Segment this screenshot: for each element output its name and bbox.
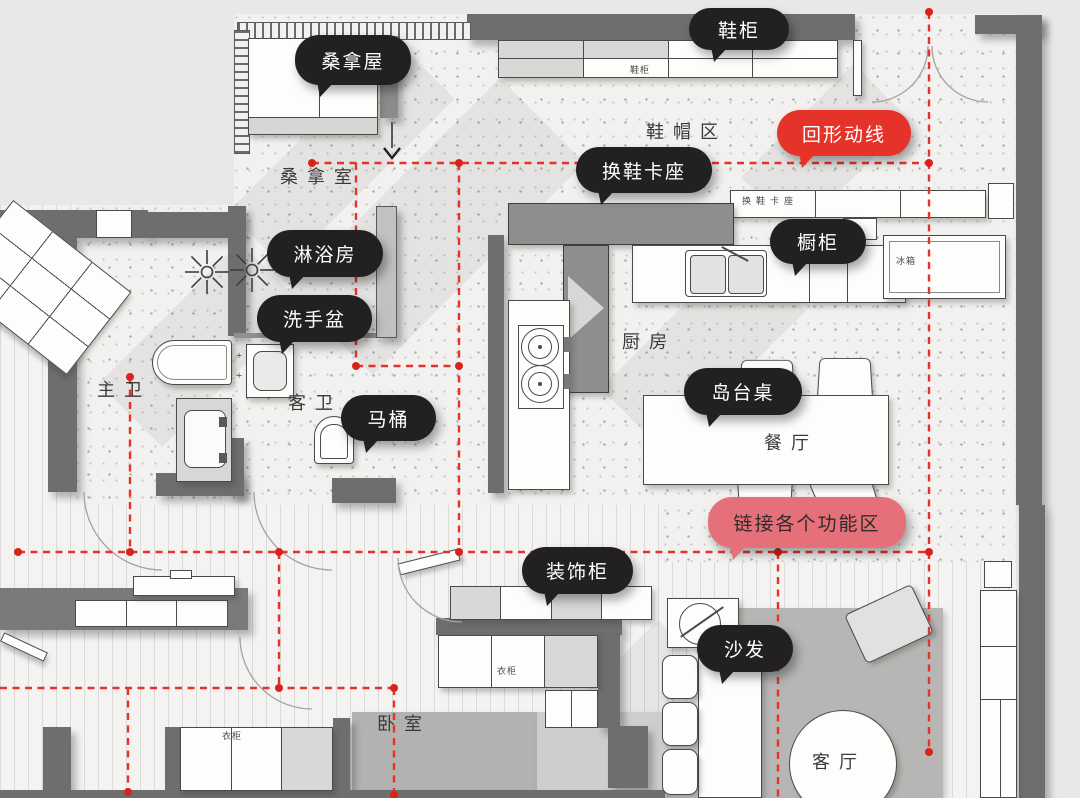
room-label-dining: 餐厅 — [764, 429, 818, 455]
plus-mark: + — [236, 370, 243, 382]
floor-plan: + + — [0, 0, 1080, 798]
wall-pillar — [96, 210, 132, 238]
plan-label-wardrobe-bl: 衣柜 — [222, 729, 242, 742]
bathtub — [152, 340, 232, 385]
wall-block-sofa-side — [608, 726, 648, 788]
callout-cupboard: 橱柜 — [770, 219, 866, 264]
callout-toilet: 马桶 — [341, 395, 436, 441]
wall-right-lower — [1019, 505, 1045, 798]
plan-label-shoe-cabinet: 鞋柜 — [630, 63, 650, 76]
callout-decorative-cabinet: 装饰柜 — [522, 547, 633, 594]
callout-shoe-cabinet: 鞋柜 — [689, 8, 789, 50]
callout-sofa: 沙发 — [697, 625, 793, 672]
wall-cabinet-bar — [436, 618, 622, 635]
room-label-sauna: 桑拿室 — [280, 163, 361, 189]
wardrobe-middle — [438, 635, 598, 688]
room-label-kitchen: 厨房 — [622, 328, 676, 354]
vanity-cabinet — [176, 398, 232, 482]
wall-bottom-band — [0, 790, 665, 798]
wall-guestbath-mid — [230, 438, 244, 496]
plan-label-wardrobe-mid: 衣柜 — [497, 664, 517, 677]
door-jamb — [165, 727, 180, 791]
stove-column — [508, 300, 570, 490]
room-label-guest-bath: 客卫 — [288, 389, 342, 415]
room-label-living: 客厅 — [812, 748, 866, 774]
callout-loop-circulation: 回形动线 — [777, 110, 911, 156]
entry-door-leaf — [853, 40, 862, 96]
plan-label-shoe-bench: 换鞋卡座 — [742, 194, 798, 207]
island-counter-top — [508, 203, 734, 245]
stove-burner — [521, 365, 559, 403]
wall-shower-partition — [376, 206, 397, 338]
bedroom2-cabinet — [75, 600, 228, 627]
plan-label-fridge: 冰箱 — [896, 254, 916, 267]
callout-shoe-bench: 换鞋卡座 — [576, 147, 712, 193]
door-jamb — [333, 718, 350, 798]
wall-guestbath-west — [228, 206, 246, 336]
sofa-cushion — [662, 749, 698, 795]
kitchen-counter — [632, 245, 906, 303]
plus-mark: + — [236, 350, 243, 362]
guestbath-sink — [246, 344, 294, 398]
callout-shower-room: 淋浴房 — [267, 230, 383, 277]
sofa-cushion — [662, 655, 698, 699]
room-label-master-bath: 主卫 — [97, 376, 151, 402]
wardrobe-bottom-left — [180, 727, 333, 791]
shoe-cabinet — [498, 40, 838, 78]
entry-side-box — [988, 183, 1014, 219]
wall-right-upper — [1016, 15, 1042, 505]
room-label-bedroom: 卧室 — [377, 710, 431, 736]
door-jamb — [43, 727, 71, 791]
wall-cabinet-vbar — [598, 635, 620, 728]
tv-shelf-box — [984, 561, 1012, 588]
callout-sauna-house: 桑拿屋 — [295, 35, 411, 85]
stove-burner — [521, 328, 559, 366]
kitchen-sink — [685, 250, 767, 297]
callout-link-zones: 链接各个功能区 — [708, 497, 906, 548]
fridge — [883, 235, 1006, 299]
sofa-cushion — [662, 702, 698, 746]
tv-cabinet — [980, 590, 1017, 798]
bedroom2-shelf — [133, 576, 235, 596]
wall-top — [467, 14, 855, 40]
wardrobe-corner — [545, 690, 598, 728]
callout-washbasin: 洗手盆 — [257, 295, 372, 342]
wall-kitchen-west — [488, 235, 504, 493]
room-label-shoe-area: 鞋帽区 — [646, 118, 727, 144]
callout-island-table: 岛台桌 — [684, 368, 802, 415]
wall-bath-south-b — [332, 478, 396, 503]
